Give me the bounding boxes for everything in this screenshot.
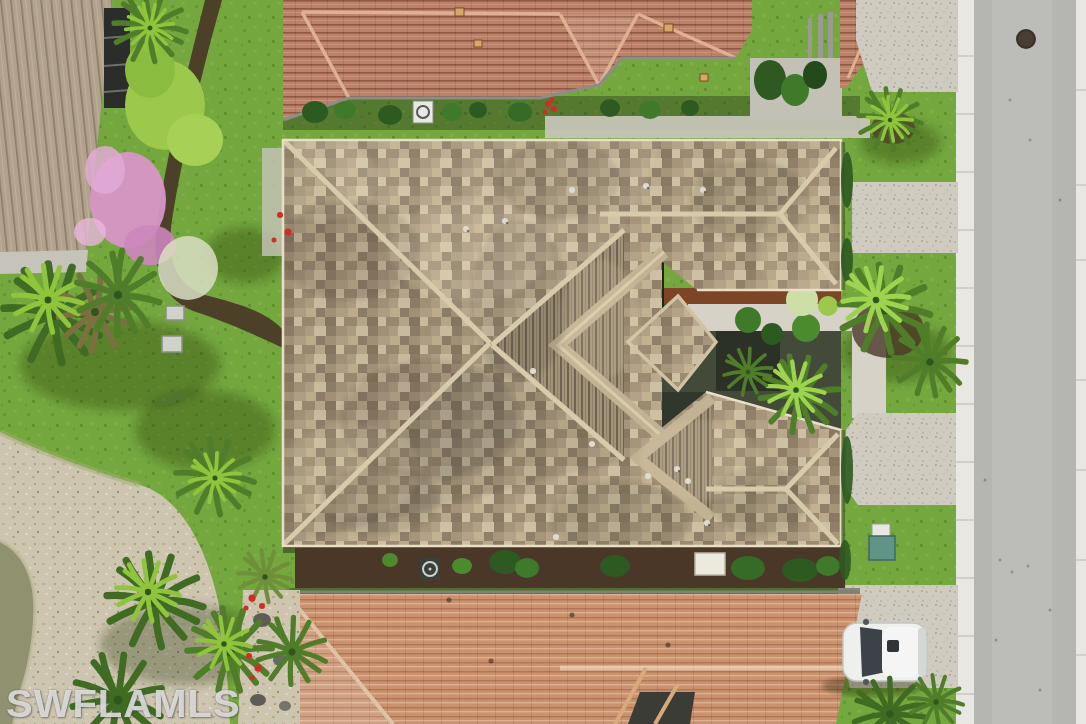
manhole — [1017, 30, 1035, 48]
car-roof — [882, 627, 920, 677]
car-rear — [918, 628, 926, 676]
car-mirror-bottom — [863, 679, 869, 685]
pool-equipment-box — [695, 553, 725, 575]
main-house — [260, 140, 886, 560]
street — [956, 0, 1086, 724]
bottom-ac-unit — [420, 558, 440, 580]
fence-posts — [808, 12, 833, 58]
curb-right — [1076, 0, 1086, 724]
car-sunroof — [887, 640, 899, 652]
bottom-neighbor-house — [283, 548, 862, 724]
aerial-photo: SWFLAMLS — [0, 0, 1086, 724]
watermark: SWFLAMLS — [6, 683, 241, 724]
driveway-top — [856, 0, 958, 92]
driveway-entry-pad — [846, 413, 956, 505]
driveway-upper-mid — [852, 182, 958, 253]
car-mirror-top — [863, 619, 869, 625]
top-ac-unit — [413, 101, 433, 123]
